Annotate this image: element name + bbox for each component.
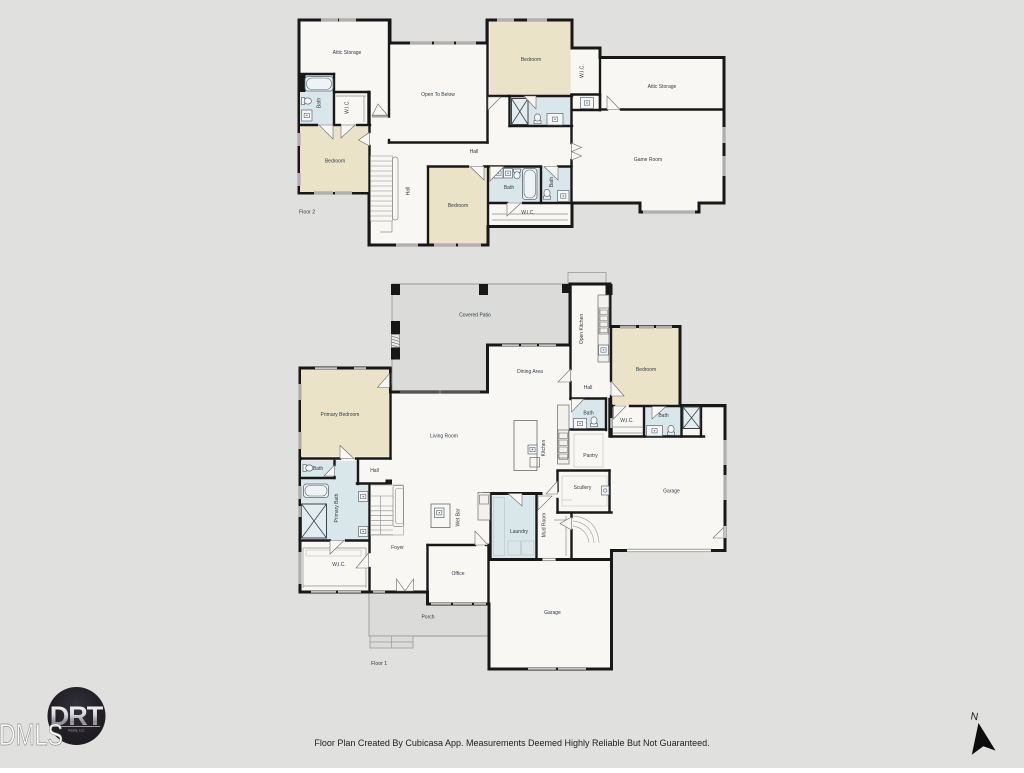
svg-text:Bedroom: Bedroom (636, 367, 656, 373)
svg-text:Bedroom: Bedroom (325, 159, 345, 165)
svg-text:Primary Bath: Primary Bath (334, 493, 340, 522)
svg-text:Realty, LLC: Realty, LLC (68, 729, 85, 733)
svg-text:Porch: Porch (421, 615, 434, 621)
svg-text:Hall: Hall (406, 187, 412, 196)
svg-text:Open Kitchen: Open Kitchen (579, 314, 585, 345)
svg-text:Covered Patio: Covered Patio (459, 313, 491, 319)
svg-text:Bath: Bath (583, 411, 594, 417)
svg-text:Scullery: Scullery (574, 485, 592, 491)
svg-text:Living Room: Living Room (430, 434, 458, 440)
svg-text:Attic Storage: Attic Storage (648, 84, 677, 90)
svg-text:Floor 2: Floor 2 (299, 210, 315, 216)
svg-text:W.I.C.: W.I.C. (332, 562, 346, 568)
svg-text:Mud Room: Mud Room (542, 513, 548, 537)
svg-text:Bedroom: Bedroom (448, 203, 468, 209)
svg-text:Hall: Hall (584, 385, 593, 391)
svg-text:Bath: Bath (549, 177, 555, 188)
svg-text:Dining Area: Dining Area (517, 369, 543, 375)
svg-text:Pantry: Pantry (583, 453, 598, 459)
svg-text:Kitchen: Kitchen (541, 439, 547, 456)
svg-text:Office: Office (452, 571, 465, 577)
svg-text:Laundry: Laundry (510, 529, 529, 535)
svg-text:W.I.C.: W.I.C. (345, 100, 351, 114)
svg-text:Primary Bedroom: Primary Bedroom (321, 412, 360, 418)
svg-text:Floor 1: Floor 1 (371, 661, 387, 667)
svg-text:Hall: Hall (370, 468, 379, 474)
svg-text:Garage: Garage (663, 489, 680, 495)
svg-text:W.I.C.: W.I.C. (620, 418, 634, 424)
svg-text:Open To Below: Open To Below (421, 92, 455, 98)
svg-text:Foyer: Foyer (391, 545, 404, 551)
svg-text:Bedroom: Bedroom (521, 57, 541, 63)
svg-text:Attic Storage: Attic Storage (333, 50, 362, 56)
svg-text:Floor Plan Created By Cubicasa: Floor Plan Created By Cubicasa App. Meas… (314, 738, 709, 748)
svg-text:Bath: Bath (658, 413, 669, 419)
svg-text:DMLS: DMLS (0, 717, 63, 752)
svg-text:Bath: Bath (317, 98, 323, 109)
svg-text:Game Room: Game Room (634, 157, 662, 163)
svg-text:W.I.C.: W.I.C. (580, 64, 586, 78)
svg-text:Hall: Hall (470, 149, 479, 155)
svg-text:W.I.C.: W.I.C. (521, 210, 535, 216)
svg-text:Garage: Garage (544, 610, 561, 616)
svg-text:Bath: Bath (504, 185, 515, 191)
svg-text:Wet Bar: Wet Bar (456, 508, 462, 526)
svg-text:Bath: Bath (313, 466, 324, 472)
